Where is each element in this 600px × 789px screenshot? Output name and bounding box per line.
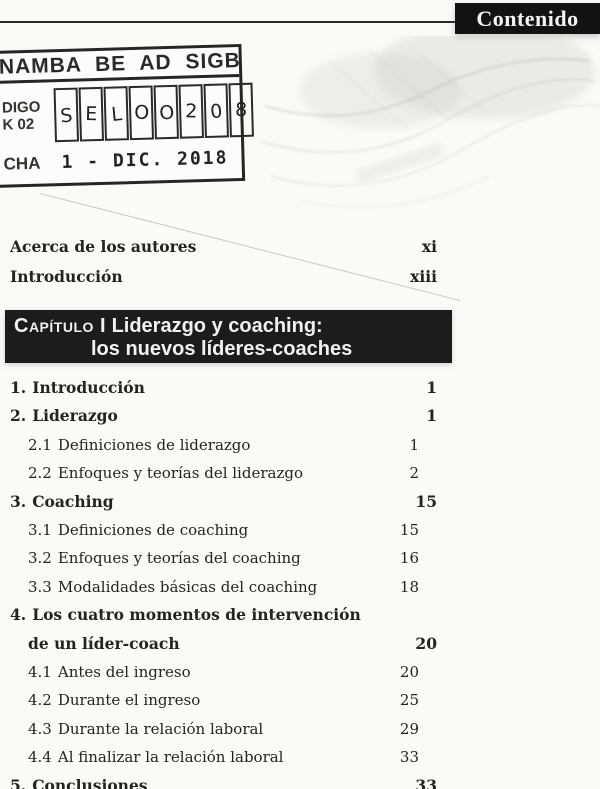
toc-entry-page-number: 33 [377, 743, 419, 771]
stamp-date: 1 - DIC. 2018 [61, 147, 228, 173]
toc-entry-label: Durante el ingreso [58, 691, 200, 709]
stamp-code-cell: 8 [228, 83, 253, 138]
front-matter-entry: Introducción xiii [10, 262, 470, 292]
toc-entry: 2.Liderazgo 1 [10, 402, 470, 430]
toc-entry-page-number: 25 [377, 686, 419, 714]
toc-entry-page-number: 18 [377, 573, 419, 601]
toc-entry: 2.1Definiciones de liderazgo 1 [10, 431, 470, 459]
stamp-code-character: O [133, 102, 149, 124]
toc-entry-number: 2.1 [28, 436, 52, 454]
toc-entry: 2.2Enfoques y teorías del liderazgo 2 [10, 459, 470, 487]
front-matter-list: Acerca de los autores xi Introducción xi… [10, 232, 470, 291]
toc-entry-page-number: 20 [395, 630, 437, 658]
stamp-code-cell: O [153, 85, 178, 140]
toc-entry: 4.2Durante el ingreso 25 [10, 686, 470, 714]
toc-entry-number: 2. [10, 406, 26, 425]
stamp-code-cell: 0 [203, 83, 228, 138]
toc-entry-page-number: 1 [377, 431, 419, 459]
header-rule [0, 21, 458, 23]
stamp-code-character: O [158, 101, 175, 124]
toc-entry-number: 3. [10, 492, 26, 511]
stamp-code-cell: 2 [178, 84, 203, 139]
toc-entry-label: Antes del ingreso [58, 663, 191, 681]
toc-entry-number: 5. [10, 776, 26, 789]
page-title-banner: Contenido [455, 3, 600, 34]
front-matter-entry: Acerca de los autores xi [10, 232, 470, 262]
toc-entry-page-number: 15 [395, 488, 437, 516]
toc-entry-label: Durante la relación laboral [58, 720, 263, 738]
stamp-code-row: DIGO K 02 SELOO208 [0, 77, 241, 148]
toc-entry-number: 3.3 [28, 578, 52, 596]
toc-entry-page-number: 1 [395, 402, 437, 430]
toc-entry-page-number: 33 [395, 772, 437, 789]
toc-entry-label: Coaching [32, 492, 113, 511]
toc-entry: 4.3Durante la relación laboral 29 [10, 715, 470, 743]
toc-entry-number: 4.3 [28, 720, 52, 738]
stamp-code-character: S [59, 104, 73, 127]
page-title: Contenido [476, 6, 578, 32]
scanned-contents-page: Contenido NAMBA BE AD SIGB DIGO K 02 SEL… [0, 0, 600, 789]
toc-entry-page-number: 15 [377, 516, 419, 544]
stamp-code-label: DIGO K 02 [0, 88, 53, 144]
toc-entry-page-number: 2 [377, 459, 419, 487]
toc-entry: 3.2Enfoques y teorías del coaching 16 [10, 544, 470, 572]
stamp-code-cell: S [54, 88, 79, 143]
toc-entry-number: 1. [10, 378, 26, 397]
toc-entry-label: Definiciones de liderazgo [58, 436, 251, 454]
stamp-code-character: 2 [185, 100, 198, 122]
chapter-banner: Capítulo I Liderazgo y coaching: los nue… [5, 310, 452, 363]
stamp-date-row: CHA 1 - DIC. 2018 [0, 141, 242, 185]
stamp-code-character: 0 [209, 100, 223, 123]
toc-entry: 5.Conclusiones 33 [10, 772, 470, 789]
toc-entry-label: Introducción [32, 378, 145, 397]
toc-entry-label: Los cuatro momentos de intervención [32, 605, 361, 624]
stamp-code-cells: SELOO208 [54, 83, 255, 143]
toc-entry-page-number: 1 [395, 374, 437, 402]
entry-label: Acerca de los autores [10, 237, 196, 256]
entry-page-number: xiii [395, 262, 437, 292]
stamp-code-character: L [110, 103, 123, 126]
toc-entry-page-number: 29 [377, 715, 419, 743]
stamp-border: NAMBA BE AD SIGB DIGO K 02 SELOO208 CHA … [0, 44, 245, 188]
entry-page-number: xi [395, 232, 437, 262]
toc-entry-label: Al finalizar la relación laboral [58, 748, 284, 766]
toc-entry-number: 3.2 [28, 549, 52, 567]
toc-entry-label: Enfoques y teorías del coaching [58, 549, 301, 567]
toc-entry-number: 3.1 [28, 521, 52, 539]
toc-entry-page-number: 20 [377, 658, 419, 686]
toc-entry: 3.Coaching 15 [10, 488, 470, 516]
toc-entry-label: Conclusiones [32, 776, 147, 789]
chapter-label: Capítulo I [14, 315, 106, 337]
toc-entry: 4.Los cuatro momentos de intervención de… [10, 601, 470, 658]
toc-entry-label: Modalidades básicas del coaching [58, 578, 317, 596]
toc-entry-number: 4.2 [28, 691, 52, 709]
toc-entry: 3.1Definiciones de coaching 15 [10, 516, 470, 544]
toc-entry-label: Definiciones de coaching [58, 521, 248, 539]
chapter-title-line1: Liderazgo y coaching: [112, 315, 323, 337]
toc-entry-number: 4.4 [28, 748, 52, 766]
toc-entry-page-number: 16 [377, 544, 419, 572]
entry-label: Introducción [10, 267, 123, 286]
toc-entry: 4.1Antes del ingreso 20 [10, 658, 470, 686]
toc-entry-number: 4.1 [28, 663, 52, 681]
stamp-code-cell: L [104, 86, 129, 141]
library-stamp: NAMBA BE AD SIGB DIGO K 02 SELOO208 CHA … [0, 44, 245, 188]
toc-entry: 1.Introducción 1 [10, 374, 470, 402]
stamp-date-label: CHA [0, 153, 62, 175]
toc-list: 1.Introducción 1 2.Liderazgo 1 2.1Defini… [10, 374, 470, 789]
stamp-code-character: 8 [235, 99, 248, 121]
toc-entry-label: Liderazgo [32, 406, 118, 425]
scan-ghost-artifact [260, 36, 600, 236]
stamp-code-cell: E [79, 87, 104, 142]
toc-entry-number: 4. [10, 605, 26, 624]
stamp-code-cell: O [128, 85, 153, 140]
toc-entry-number: 2.2 [28, 464, 52, 482]
toc-entry: 4.4Al finalizar la relación laboral 33 [10, 743, 470, 771]
toc-entry: 3.3Modalidades básicas del coaching 18 [10, 573, 470, 601]
stamp-code-character: E [85, 103, 98, 125]
chapter-title-line2: los nuevos líderes-coaches [5, 338, 452, 361]
toc-entry-label: Enfoques y teorías del liderazgo [58, 464, 303, 482]
